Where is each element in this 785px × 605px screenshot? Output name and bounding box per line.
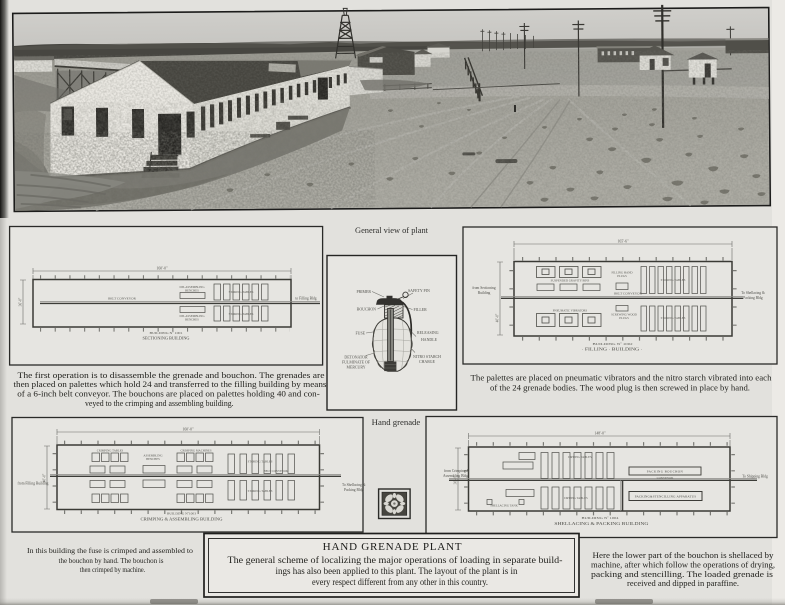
- svg-text:from Crimping &: from Crimping &: [444, 469, 470, 473]
- svg-text:To Shellacing &: To Shellacing &: [741, 291, 765, 295]
- svg-text:BUILDING Nº 1004: BUILDING Nº 1004: [582, 516, 619, 520]
- svg-text:Packing Bldg: Packing Bldg: [743, 296, 763, 300]
- svg-text:160'-0": 160'-0": [156, 267, 168, 271]
- svg-text:PRIMER: PRIMER: [357, 290, 372, 294]
- svg-text:CRIMPING TABLES: CRIMPING TABLES: [97, 449, 124, 453]
- svg-text:40'-0": 40'-0": [496, 313, 500, 322]
- svg-text:STORING TABLES: STORING TABLES: [248, 460, 273, 464]
- svg-text:To Shellacing &: To Shellacing &: [342, 483, 366, 487]
- svg-text:CHARGE: CHARGE: [419, 360, 436, 364]
- svg-text:FUSE: FUSE: [355, 332, 365, 336]
- svg-text:received and dipped in paraffi: received and dipped in paraffine.: [627, 578, 739, 588]
- svg-text:BENCHES: BENCHES: [146, 457, 160, 461]
- svg-text:BOUCHON: BOUCHON: [357, 308, 376, 312]
- svg-text:· FILLING · BUILDING ·: · FILLING · BUILDING ·: [582, 346, 643, 351]
- svg-text:165'-6": 165'-6": [617, 240, 629, 244]
- svg-text:SAFETY PIN: SAFETY PIN: [408, 289, 430, 293]
- svg-text:160'-0": 160'-0": [182, 428, 194, 432]
- svg-text:STORING TABLES: STORING TABLES: [248, 489, 273, 493]
- svg-text:PACKING BOUCHON: PACKING BOUCHON: [647, 470, 684, 474]
- svg-text:PLUGS: PLUGS: [617, 274, 627, 278]
- svg-text:of a 6-inch belt conveyor.: of a 6-inch belt conveyor. The bouchons …: [17, 390, 320, 399]
- svg-text:BELT CONVEYOR: BELT CONVEYOR: [108, 297, 137, 301]
- svg-text:Packing Bldg: Packing Bldg: [344, 488, 364, 492]
- svg-text:PNEUMATIC VIBRATORS: PNEUMATIC VIBRATORS: [553, 309, 588, 313]
- svg-text:The palettes are placed on pne: The palettes are placed on pneumatic vib…: [471, 372, 773, 382]
- svg-text:To Shipping Bldg: To Shipping Bldg: [742, 475, 768, 479]
- svg-text:DETONATOR: DETONATOR: [344, 356, 368, 360]
- svg-text:BUILDING Nº1003: BUILDING Nº1003: [167, 512, 196, 516]
- svg-text:of the 24 grenade bodies. T: of the 24 grenade bodies. The wood plug …: [490, 383, 750, 393]
- svg-text:from Filling Building: from Filling Building: [18, 482, 49, 486]
- svg-text:every respect different from a: every respect different from any other i…: [312, 577, 488, 587]
- svg-text:RELEASING: RELEASING: [417, 331, 439, 335]
- svg-text:148'-0": 148'-0": [594, 432, 606, 436]
- svg-text:36'-0": 36'-0": [19, 297, 23, 306]
- svg-text:SUSPENDED GRAVITY BINS: SUSPENDED GRAVITY BINS: [551, 279, 590, 283]
- svg-text:PACKING&STENCILLING APPARATUS: PACKING&STENCILLING APPARATUS: [635, 495, 696, 499]
- svg-text:veyed to the crimping and asse: veyed to the crimping and assembling bui…: [85, 399, 234, 408]
- svg-text:from Sectioning: from Sectioning: [472, 286, 495, 290]
- svg-text:then placed on palettes which: then placed on palettes which hold 24 an…: [14, 380, 327, 389]
- svg-text:Hand grenade: Hand grenade: [372, 418, 421, 427]
- svg-text:SHELLACING TANK: SHELLACING TANK: [490, 504, 518, 508]
- svg-text:Here the lower part of the bou: Here the lower part of the bouchon is sh…: [593, 550, 775, 560]
- svg-text:CRIMPING MACHINES: CRIMPING MACHINES: [180, 449, 211, 453]
- svg-text:FULMINATE OF: FULMINATE OF: [342, 361, 371, 365]
- svg-text:STORING TABLES: STORING TABLES: [229, 312, 254, 316]
- svg-text:the bouchon by hand. The bo: the bouchon by hand. The bouchon is: [59, 556, 164, 565]
- svg-text:SHELLACING & PACKING BUILDI: SHELLACING & PACKING BUILDING: [554, 521, 649, 526]
- svg-text:The general scheme of localizi: The general scheme of localizing the maj…: [228, 555, 563, 565]
- svg-text:Building: Building: [478, 291, 491, 295]
- svg-text:HAND GRENADE PLANT: HAND GRENADE PLANT: [323, 541, 463, 553]
- svg-text:ings has also been applied to: ings has also been applied to this plant…: [276, 566, 518, 576]
- svg-text:Assembling Bldg: Assembling Bldg: [443, 474, 468, 478]
- svg-text:HANDLE: HANDLE: [421, 338, 438, 342]
- svg-text:STORING TABLES: STORING TABLES: [661, 316, 686, 320]
- svg-text:BELT CONVEYOR: BELT CONVEYOR: [264, 469, 289, 473]
- svg-text:The first operation is to disa: The first operation is to disassemble th…: [18, 371, 325, 380]
- svg-text:MERCURY: MERCURY: [346, 366, 365, 370]
- svg-text:to Filling Bldg: to Filling Bldg: [295, 297, 316, 301]
- svg-text:In this building the fuse is c: In this building the fuse is crimped and…: [27, 546, 193, 555]
- svg-text:STORING TABLES: STORING TABLES: [229, 290, 254, 294]
- svg-text:SECTIONING BUILDING: SECTIONING BUILDING: [143, 335, 191, 340]
- svg-text:BELT CONVEYOR: BELT CONVEYOR: [614, 292, 643, 296]
- svg-text:General view of plant: General view of plant: [355, 226, 429, 235]
- svg-text:NITRO STARCH: NITRO STARCH: [413, 355, 441, 359]
- svg-text:STORING TABLES: STORING TABLES: [661, 278, 686, 282]
- svg-text:BENCHES: BENCHES: [185, 288, 199, 292]
- svg-text:FILLER: FILLER: [414, 308, 428, 312]
- svg-text:DRYING TABLES: DRYING TABLES: [564, 496, 588, 500]
- svg-text:DRYING TABLES: DRYING TABLES: [568, 455, 592, 459]
- svg-text:CONVEYOR: CONVEYOR: [657, 476, 674, 480]
- svg-text:BENCHES: BENCHES: [185, 317, 199, 321]
- svg-text:then crimped by machine.: then crimped by machine.: [80, 565, 146, 574]
- svg-text:PLUGS: PLUGS: [619, 316, 629, 320]
- svg-text:CRIMPING & ASSEMBLING BUILD: CRIMPING & ASSEMBLING BUILDING: [141, 517, 224, 522]
